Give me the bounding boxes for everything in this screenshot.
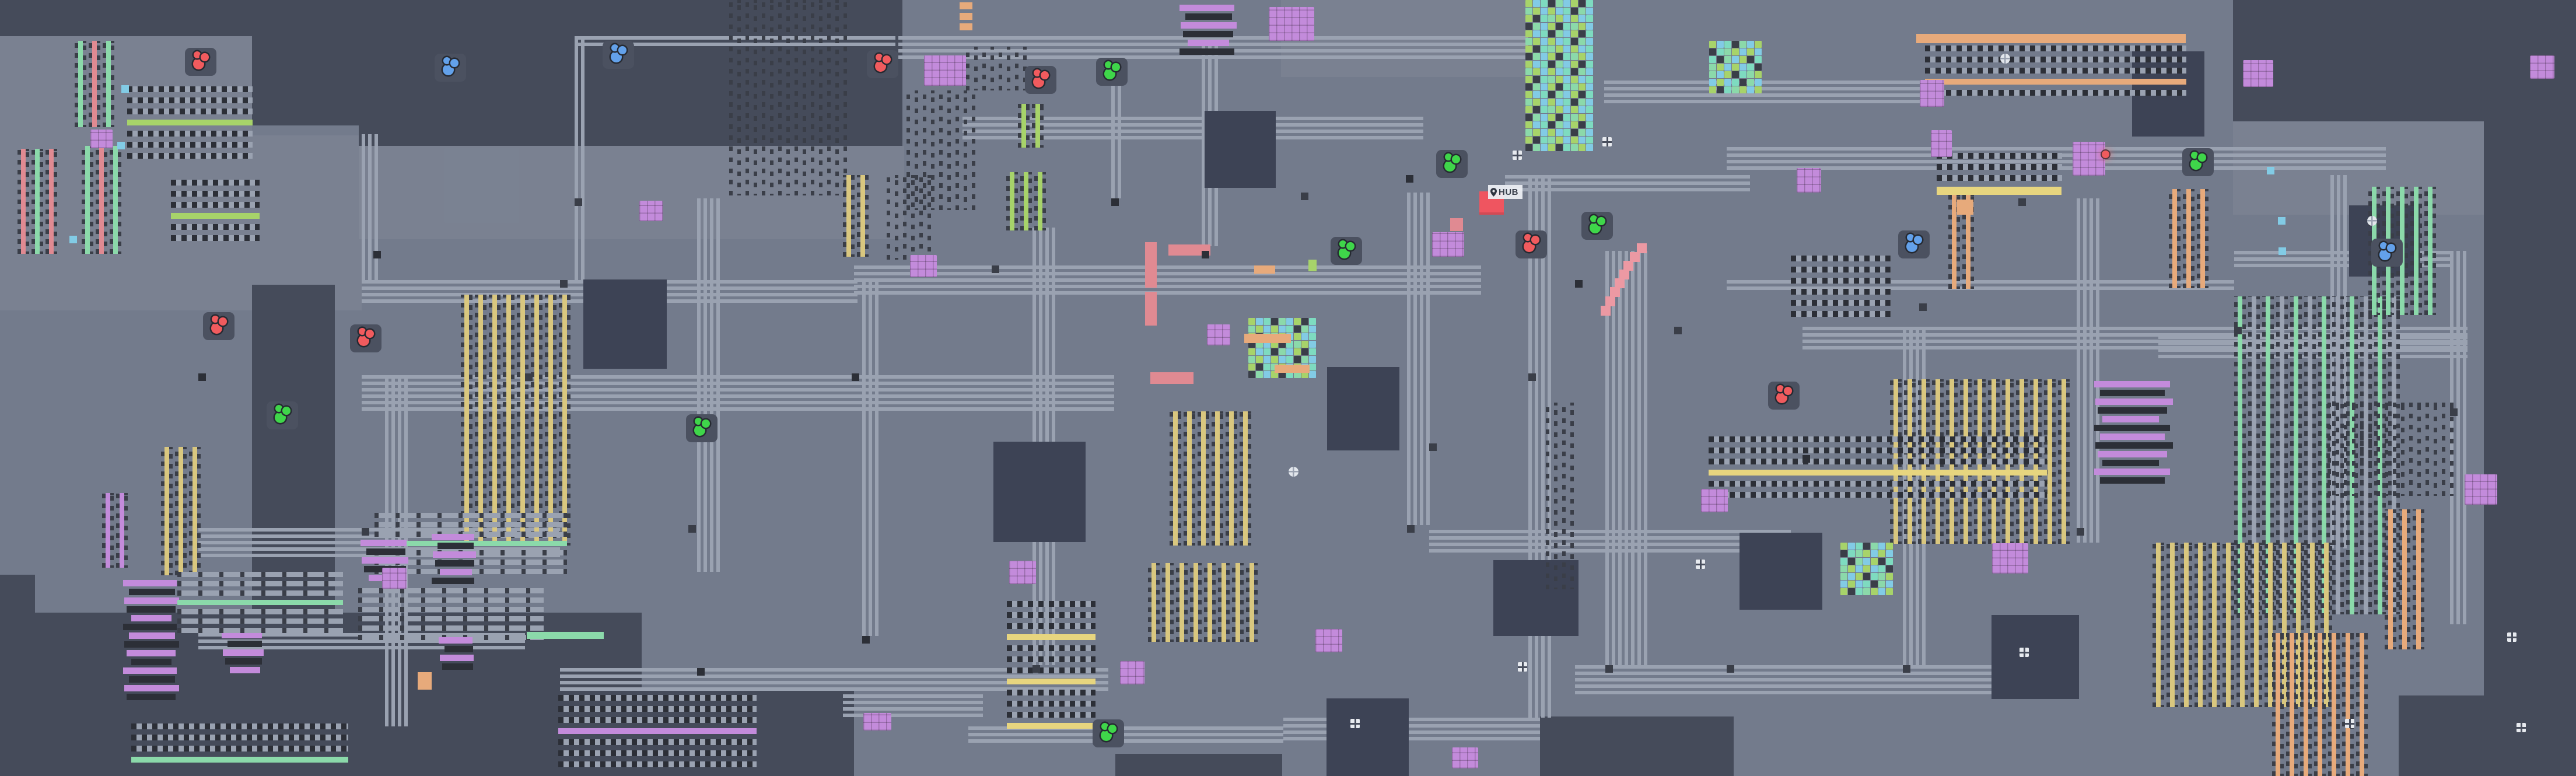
conveyor-line	[2083, 198, 2087, 543]
resource-marker-green[interactable]	[1587, 215, 1607, 234]
module-cell	[1525, 23, 1532, 30]
module-cell	[1724, 56, 1731, 63]
resource-marker-green[interactable]	[272, 405, 292, 424]
machine-column	[1014, 172, 1018, 230]
module-cell	[1548, 76, 1555, 83]
machine-block	[1575, 280, 1583, 288]
conveyor-line	[2096, 198, 2099, 543]
machine-cluster-dotcol	[2327, 403, 2462, 496]
belt-stripe	[464, 295, 469, 546]
machine-row	[1791, 311, 1891, 317]
module-cell	[1586, 8, 1593, 15]
machine-cluster-comb	[1007, 601, 1095, 738]
hub-map-tag[interactable]: HUB	[1488, 185, 1522, 199]
machine-column	[2401, 403, 2404, 496]
belt-stripe	[1038, 172, 1042, 230]
module-cell	[1533, 144, 1540, 151]
conveyor-line	[1505, 175, 1750, 179]
machine-row	[1925, 79, 2186, 85]
machine-column	[903, 175, 907, 260]
machine-row	[1791, 289, 1891, 295]
module-cell	[1709, 79, 1716, 86]
module-cell	[1739, 79, 1746, 86]
marker-circle	[1101, 723, 1108, 730]
machine-row	[2094, 381, 2170, 387]
resource-marker-green[interactable]	[2188, 152, 2208, 170]
resource-marker-red[interactable]	[873, 54, 892, 72]
machine-column	[974, 47, 978, 90]
marker-circle	[1041, 71, 1049, 79]
machine-row	[131, 735, 348, 740]
resource-marker-green[interactable]	[1442, 153, 1462, 172]
map-pin-icon	[1490, 188, 1497, 197]
resource-marker-blue[interactable]	[1904, 234, 1924, 253]
module-cell	[1586, 46, 1593, 53]
resource-marker-red[interactable]	[1521, 234, 1541, 253]
conveyor-line	[710, 198, 713, 572]
belt-stripe	[2276, 633, 2280, 776]
machine-row	[1925, 68, 2186, 74]
resource-marker-green[interactable]	[692, 418, 712, 436]
machine-column	[2409, 403, 2413, 496]
conveyor-line	[1429, 543, 1791, 546]
belt-stripe	[2061, 379, 2066, 544]
module-cell	[1739, 64, 1746, 71]
marker-circle	[1112, 63, 1120, 71]
module-cell	[1533, 68, 1540, 75]
machine-row	[1007, 612, 1095, 618]
machine-column	[26, 149, 29, 254]
machine-column	[1028, 172, 1032, 230]
machine-column	[2442, 403, 2445, 496]
large-structure	[1326, 698, 1409, 776]
machine-row	[129, 632, 175, 639]
belt-stripe	[92, 41, 97, 127]
module-cell	[1541, 129, 1548, 136]
module-cell	[1525, 144, 1532, 151]
machine-column	[982, 47, 986, 90]
conveyor-line	[368, 134, 372, 280]
module-cell	[1548, 30, 1555, 37]
marker-circle	[702, 420, 710, 428]
machine-column	[2425, 403, 2429, 496]
machine-row	[1937, 164, 2062, 170]
machine-row	[558, 706, 757, 712]
marker-circle	[194, 51, 201, 58]
module-cell	[1525, 53, 1532, 60]
machine-row	[1007, 623, 1095, 629]
machine-row	[1709, 492, 2047, 498]
machine-column	[2191, 189, 2194, 288]
machine-column	[2352, 403, 2355, 496]
module-cell	[1878, 581, 1885, 588]
module-cell	[1571, 114, 1578, 121]
machine-column	[90, 146, 93, 254]
module-cell	[1533, 121, 1540, 128]
module-cell	[1309, 371, 1316, 378]
conveyor-line	[1637, 251, 1641, 665]
machine-cluster-comb	[1791, 256, 1891, 330]
machine-row	[2095, 399, 2173, 405]
module-cell	[1548, 8, 1555, 15]
module-cell	[1856, 573, 1863, 580]
marker-circle	[1597, 217, 1605, 225]
machine-column	[183, 447, 187, 575]
belt-stripe	[2402, 509, 2407, 649]
module-cell	[1732, 64, 1739, 71]
module-cell	[1548, 46, 1555, 53]
module-cell	[1556, 121, 1563, 128]
module-cell	[1571, 46, 1578, 53]
machine-cluster-comb	[127, 86, 253, 174]
machine-column	[2203, 543, 2206, 707]
module-cell	[1856, 558, 1863, 565]
belt-stripe	[164, 447, 169, 575]
machine-block	[688, 525, 696, 533]
marker-circle	[282, 407, 290, 415]
conveyor-line	[581, 36, 584, 281]
module-cell	[1556, 23, 1563, 30]
module-cell	[1548, 23, 1555, 30]
module-cell	[1717, 71, 1724, 78]
module-cell	[1871, 573, 1878, 580]
machine-column	[2432, 187, 2436, 315]
colored-belt-segment	[1275, 365, 1310, 373]
module-cell	[1563, 0, 1570, 7]
machine-column	[1212, 563, 1216, 642]
module-cell	[1878, 565, 1885, 572]
module-cell	[1571, 76, 1578, 83]
module-cell	[1717, 86, 1724, 93]
machine-row	[2094, 469, 2170, 475]
resource-marker-red[interactable]	[356, 328, 376, 347]
marker-circle	[1452, 155, 1460, 163]
module-cell	[1256, 326, 1263, 333]
marker-circle	[1339, 240, 1346, 247]
storage-block	[121, 85, 129, 93]
module-cell	[1724, 86, 1731, 93]
machine-row	[374, 522, 567, 527]
machine-cluster-grid	[2530, 55, 2554, 79]
machine-column	[1170, 563, 1174, 642]
marker-circle	[1105, 61, 1112, 68]
module-cell	[1533, 91, 1540, 98]
machine-row	[129, 676, 175, 683]
module-cell	[1586, 0, 1593, 7]
conveyor-line	[1283, 718, 1540, 721]
machine-column	[827, 0, 831, 195]
conveyor-line	[968, 739, 1283, 743]
machine-column	[553, 295, 556, 546]
machine-cluster-colv	[102, 493, 130, 568]
module-cell	[1578, 53, 1585, 60]
machine-row	[131, 757, 348, 763]
module-cell	[1571, 83, 1578, 90]
belt-stripe	[2416, 509, 2421, 649]
conveyor-line	[843, 707, 983, 711]
marker-circle	[359, 328, 366, 335]
machine-row	[358, 597, 544, 603]
machine-cluster-hrows	[177, 572, 343, 643]
module-cell	[1717, 48, 1724, 55]
marker-circle	[1531, 236, 1539, 244]
module-cell	[1871, 558, 1878, 565]
machine-row	[1007, 645, 1095, 651]
module-cell	[1548, 121, 1555, 128]
machine-row	[366, 548, 405, 555]
module-cell	[1301, 348, 1308, 355]
machine-row	[440, 569, 472, 575]
machine-column	[2350, 633, 2354, 776]
module-cell	[1755, 56, 1762, 63]
module-cell	[1541, 83, 1548, 90]
module-cell	[1886, 550, 1893, 557]
module-cell	[1548, 137, 1555, 144]
alert-dot-marker[interactable]	[2102, 151, 2109, 158]
colored-belt-segment	[960, 23, 972, 30]
module-cell	[1541, 30, 1548, 37]
module-cell	[1563, 114, 1570, 121]
conveyor-line	[1429, 530, 1791, 533]
machine-row	[127, 97, 253, 103]
machine-block	[862, 636, 870, 644]
machine-block	[2077, 528, 2084, 536]
belt-stripe	[106, 41, 111, 127]
machine-row	[558, 728, 757, 734]
belt-stripe	[520, 295, 525, 546]
resource-marker-blue[interactable]	[2377, 242, 2397, 261]
module-cell	[1525, 76, 1532, 83]
resource-marker-red[interactable]	[209, 316, 229, 334]
belt-stripe	[2318, 633, 2322, 776]
module-cell	[1541, 38, 1548, 45]
machine-block	[373, 251, 381, 258]
module-cell	[1271, 348, 1278, 355]
module-cell	[1578, 144, 1585, 151]
colored-belt-segment	[1308, 260, 1317, 271]
module-cell	[1578, 121, 1585, 128]
resource-marker-blue[interactable]	[440, 57, 460, 76]
module-cell	[1848, 565, 1855, 572]
module-cell	[1541, 137, 1548, 144]
module-cell	[1563, 137, 1570, 144]
machine-cluster-colv	[1018, 104, 1053, 148]
machine-block	[2018, 198, 2026, 206]
module-cell	[1256, 348, 1263, 355]
machine-column	[110, 493, 114, 568]
machine-column	[525, 295, 528, 546]
machine-row	[2100, 477, 2165, 484]
machine-column	[2052, 379, 2056, 544]
belt-stripe	[1035, 104, 1040, 148]
machine-column	[1192, 411, 1195, 546]
module-cell	[1848, 543, 1855, 550]
machine-column	[794, 0, 798, 195]
module-cell	[1571, 129, 1578, 136]
module-cell	[1279, 348, 1286, 355]
module-cell	[1279, 318, 1286, 325]
machine-cluster-purpleh	[2094, 381, 2173, 489]
module-cell	[1286, 348, 1293, 355]
belt-stripe	[78, 41, 83, 127]
module-cell	[1863, 550, 1870, 557]
machine-column	[2245, 543, 2248, 707]
conveyor-line	[2463, 251, 2466, 624]
machine-column	[2205, 189, 2208, 288]
belt-stripe	[1229, 411, 1234, 546]
module-cell	[1571, 99, 1578, 106]
conveyor-line	[854, 291, 1481, 295]
machine-row	[358, 607, 544, 612]
conveyor-line	[1283, 724, 1540, 728]
machine-row	[1937, 175, 2062, 181]
machine-block	[1674, 327, 1682, 334]
module-cell	[1263, 356, 1270, 363]
module-cell	[1717, 56, 1724, 63]
module-cell	[1755, 71, 1762, 78]
module-cell	[1840, 558, 1847, 565]
belt-stripe	[1179, 563, 1184, 642]
unexplored-region	[252, 0, 362, 125]
machine-row	[2102, 416, 2159, 422]
module-cell	[1578, 61, 1585, 68]
module-cell	[1556, 144, 1563, 151]
resource-marker-red[interactable]	[1774, 385, 1794, 404]
machine-cluster-purpleh	[439, 637, 474, 672]
module-cell	[1533, 38, 1540, 45]
machine-row	[558, 695, 757, 701]
resource-marker-green[interactable]	[1102, 61, 1122, 80]
resource-marker-green[interactable]	[1336, 240, 1356, 259]
machine-column	[851, 175, 855, 257]
module-cell	[1578, 0, 1585, 7]
module-cell	[1578, 106, 1585, 113]
machine-column	[1234, 411, 1237, 546]
module-cell	[1724, 48, 1731, 55]
machine-column	[964, 90, 967, 210]
machine-column	[1042, 172, 1046, 230]
module-cell	[1586, 53, 1593, 60]
machine-row	[440, 655, 474, 661]
radar-glyph-icon	[2367, 216, 2377, 226]
machine-column	[1198, 563, 1202, 642]
machine-cluster-colv	[2169, 189, 2211, 288]
module-cell	[1878, 573, 1885, 580]
module-cell	[1525, 8, 1532, 15]
belt-stripe	[2388, 509, 2393, 649]
machine-column	[497, 295, 501, 546]
conveyor-line	[1618, 251, 1622, 665]
machine-row	[124, 597, 179, 604]
belt-stripe	[2240, 543, 2245, 707]
game-map-viewport[interactable]: HUB	[0, 0, 2576, 776]
module-cell	[1541, 0, 1548, 7]
module-cell	[1747, 48, 1754, 55]
module-cell	[1732, 56, 1739, 63]
conveyor-line	[716, 198, 720, 572]
marker-circle	[2380, 242, 2387, 249]
machine-block	[525, 373, 533, 381]
module-cell	[1309, 363, 1316, 370]
module-cell	[1863, 573, 1870, 580]
large-structure	[993, 442, 1086, 542]
machine-row	[432, 534, 474, 540]
conveyor-line	[2077, 198, 2080, 543]
marker-circle	[876, 54, 883, 61]
machine-cluster-grid	[863, 713, 891, 730]
module-cell	[1556, 114, 1563, 121]
machine-row	[2094, 425, 2170, 431]
machine-column	[2404, 187, 2408, 315]
belt-stripe	[562, 295, 567, 546]
storage-block	[2278, 247, 2286, 255]
belt-stripe	[49, 149, 54, 254]
module-cell	[1548, 91, 1555, 98]
machine-row	[432, 578, 474, 584]
machine-row	[1925, 90, 2186, 96]
machine-column	[483, 295, 487, 546]
belt-stripe	[2200, 189, 2205, 288]
module-cell	[1541, 76, 1548, 83]
machine-row	[123, 580, 177, 586]
large-structure	[1739, 533, 1822, 610]
marker-circle	[1914, 236, 1922, 244]
module-cell	[1586, 121, 1593, 128]
machine-row	[2102, 460, 2159, 466]
colored-belt-segment	[1145, 242, 1157, 288]
machine-block	[697, 668, 705, 676]
machine-cluster-grid	[924, 55, 966, 86]
resource-marker-red[interactable]	[191, 51, 211, 70]
machine-column	[2393, 509, 2396, 649]
module-cell	[1709, 86, 1716, 93]
machine-cluster-grid	[639, 201, 663, 221]
resource-marker-blue[interactable]	[608, 44, 628, 63]
machine-row	[131, 615, 171, 621]
machine-row	[1791, 278, 1891, 284]
machine-row	[124, 685, 179, 691]
conveyor-line	[875, 280, 878, 636]
module-cell	[1279, 356, 1286, 363]
module-cell	[1717, 79, 1724, 86]
module-cell	[1533, 0, 1540, 7]
machine-cluster-colv	[82, 146, 129, 254]
module-cell	[1556, 0, 1563, 7]
module-cell	[1732, 48, 1739, 55]
resource-marker-red[interactable]	[1031, 69, 1051, 88]
machine-column	[1206, 411, 1209, 546]
hub-label: HUB	[1499, 187, 1518, 197]
machine-column	[972, 90, 975, 210]
marker-circle	[212, 316, 219, 323]
machine-row	[1007, 701, 1095, 707]
marker-circle	[1346, 242, 1354, 250]
module-cell	[1571, 144, 1578, 151]
module-cell	[1271, 326, 1278, 333]
machine-row	[1007, 679, 1095, 684]
belt-stripe	[478, 295, 483, 546]
module-cell	[1294, 341, 1301, 348]
conveyor-line	[1625, 251, 1628, 665]
machine-cluster-comb	[171, 180, 260, 253]
resource-marker-green[interactable]	[1098, 723, 1118, 742]
module-cell	[1556, 83, 1563, 90]
module-cell	[1732, 41, 1739, 48]
machine-block	[362, 528, 369, 536]
machine-cluster-grid	[2073, 142, 2105, 176]
module-cell	[1724, 71, 1731, 78]
module-cell	[1541, 8, 1548, 15]
